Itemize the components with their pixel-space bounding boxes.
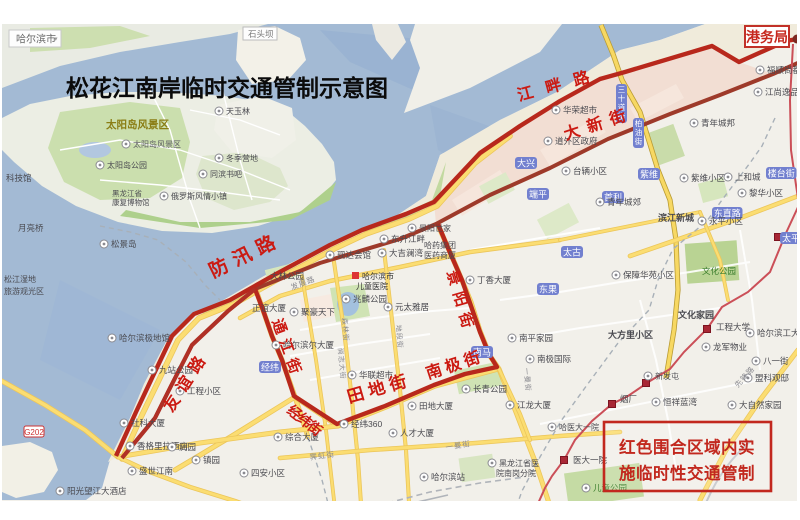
svg-text:东升江畔: 东升江畔 — [391, 234, 426, 244]
svg-text:医药商厦: 医药商厦 — [424, 250, 456, 260]
svg-text:烟厂: 烟厂 — [620, 394, 637, 404]
svg-text:江龙大厦: 江龙大厦 — [517, 400, 552, 410]
svg-text:医大一院: 医大一院 — [573, 455, 608, 465]
svg-text:黑龙江省: 黑龙江省 — [112, 188, 142, 198]
svg-text:同滨书吧: 同滨书吧 — [210, 169, 242, 179]
svg-text:太阳岛风景区: 太阳岛风景区 — [105, 118, 169, 131]
svg-text:润园: 润园 — [179, 442, 196, 452]
svg-text:丁香大厦: 丁香大厦 — [477, 275, 512, 285]
svg-text:天玉林: 天玉林 — [226, 106, 250, 116]
svg-text:经纬360: 经纬360 — [351, 419, 382, 429]
svg-text:科技馆: 科技馆 — [6, 173, 32, 183]
svg-text:四安小区: 四安小区 — [251, 468, 286, 478]
svg-text:正谊大厦: 正谊大厦 — [252, 303, 287, 313]
svg-text:哈尔滨站: 哈尔滨站 — [431, 472, 466, 482]
svg-text:江尚逸品: 江尚逸品 — [765, 87, 799, 97]
svg-text:哈尔滨市: 哈尔滨市 — [362, 271, 394, 281]
svg-text:松花江南岸临时交通管制示意图: 松花江南岸临时交通管制示意图 — [66, 75, 388, 101]
svg-text:景阳世家: 景阳世家 — [419, 223, 451, 233]
svg-text:柏: 柏 — [635, 118, 643, 128]
svg-text:俄罗斯风情小镇: 俄罗斯风情小镇 — [171, 191, 227, 201]
svg-text:港务局: 港务局 — [746, 29, 788, 45]
svg-text:康复博物馆: 康复博物馆 — [112, 197, 150, 207]
svg-text:冬季营地: 冬季营地 — [226, 153, 258, 163]
svg-text:太阳岛公园: 太阳岛公园 — [107, 160, 147, 170]
svg-text:街: 街 — [635, 136, 643, 146]
svg-text:文化公园: 文化公园 — [702, 266, 736, 276]
svg-text:新发屯: 新发屯 — [655, 371, 679, 381]
svg-text:紫维: 紫维 — [640, 169, 658, 180]
svg-text:儿童医院: 儿童医院 — [356, 281, 388, 291]
svg-text:保障华苑小区: 保障华苑小区 — [623, 270, 675, 280]
svg-text:社科大厦: 社科大厦 — [131, 418, 166, 428]
svg-text:红色围合区域内实: 红色围合区域内实 — [619, 437, 755, 457]
svg-text:南极国际: 南极国际 — [537, 354, 572, 364]
svg-text:青年城郊: 青年城郊 — [607, 197, 642, 207]
svg-text:G202: G202 — [24, 428, 44, 437]
svg-text:长青公园: 长青公园 — [473, 384, 507, 394]
svg-text:现达会馆: 现达会馆 — [337, 250, 371, 260]
svg-text:哈尔滨市: 哈尔滨市 — [16, 33, 56, 46]
svg-text:楼台街: 楼台街 — [768, 168, 795, 179]
svg-text:松景岛: 松景岛 — [111, 239, 137, 249]
svg-text:松江湿地: 松江湿地 — [4, 274, 36, 284]
svg-text:盟科观邸: 盟科观邸 — [755, 373, 790, 383]
svg-text:人才大厦: 人才大厦 — [400, 428, 435, 438]
svg-text:黑龙江省医: 黑龙江省医 — [499, 458, 539, 468]
svg-text:田地大厦: 田地大厦 — [419, 401, 454, 411]
svg-text:太阳岛风景区: 太阳岛风景区 — [133, 139, 181, 149]
svg-text:太平: 太平 — [782, 233, 800, 244]
svg-text:文化家园: 文化家园 — [677, 309, 714, 320]
svg-text:八一街: 八一街 — [763, 356, 789, 366]
svg-text:南平家园: 南平家园 — [519, 333, 553, 343]
svg-text:龙军物业: 龙军物业 — [713, 342, 747, 352]
svg-text:十: 十 — [618, 93, 626, 103]
svg-text:施临时性交通管制: 施临时性交通管制 — [619, 463, 755, 483]
svg-text:台辆小区: 台辆小区 — [573, 166, 608, 176]
svg-text:镇园: 镇园 — [203, 455, 220, 465]
svg-text:福顺尚都: 福顺尚都 — [767, 65, 800, 75]
svg-text:紫维小区: 紫维小区 — [691, 173, 726, 183]
svg-text:哈尔滨极地馆: 哈尔滨极地馆 — [119, 333, 170, 343]
svg-text:上和城: 上和城 — [735, 172, 761, 182]
svg-text:华荣超市: 华荣超市 — [563, 105, 598, 115]
svg-text:聚豪天下: 聚豪天下 — [301, 307, 336, 317]
svg-text:太古: 太古 — [563, 247, 581, 258]
svg-text:恒祥蓝湾: 恒祥蓝湾 — [663, 397, 698, 407]
svg-text:兆麟公园: 兆麟公园 — [353, 294, 387, 304]
svg-text:大自然家园: 大自然家园 — [739, 400, 782, 410]
svg-text:石头坝: 石头坝 — [248, 29, 274, 39]
svg-text:经纬: 经纬 — [261, 362, 279, 373]
svg-text:端平: 端平 — [529, 189, 547, 200]
svg-text:三: 三 — [618, 85, 626, 94]
svg-text:月亮桥: 月亮桥 — [18, 223, 44, 233]
svg-text:大兴: 大兴 — [517, 158, 535, 169]
svg-text:阳光望江大酒店: 阳光望江大酒店 — [67, 486, 127, 496]
svg-text:青年城邦: 青年城邦 — [701, 118, 736, 128]
svg-text:元太雅居: 元太雅居 — [395, 302, 429, 312]
svg-text:黎华小区: 黎华小区 — [749, 188, 784, 198]
svg-text:旅游观光区: 旅游观光区 — [4, 286, 44, 296]
svg-text:院南岗分院: 院南岗分院 — [496, 468, 536, 478]
svg-text:哈药集团: 哈药集团 — [424, 240, 456, 250]
svg-text:东果: 东果 — [539, 284, 557, 295]
svg-text:哈尔滨工大: 哈尔滨工大 — [757, 328, 800, 338]
svg-text:▾: ▾ — [54, 36, 58, 43]
svg-text:大方里小区: 大方里小区 — [608, 329, 653, 340]
svg-text:工程大学: 工程大学 — [716, 322, 751, 332]
svg-text:永平小区: 永平小区 — [709, 216, 744, 226]
svg-text:油: 油 — [635, 127, 643, 137]
svg-text:哈医大一院: 哈医大一院 — [559, 422, 599, 432]
svg-text:盛世江南: 盛世江南 — [139, 466, 173, 476]
svg-text:大吉澜湾: 大吉澜湾 — [389, 248, 424, 258]
svg-text:滨江新城: 滨江新城 — [658, 212, 694, 223]
